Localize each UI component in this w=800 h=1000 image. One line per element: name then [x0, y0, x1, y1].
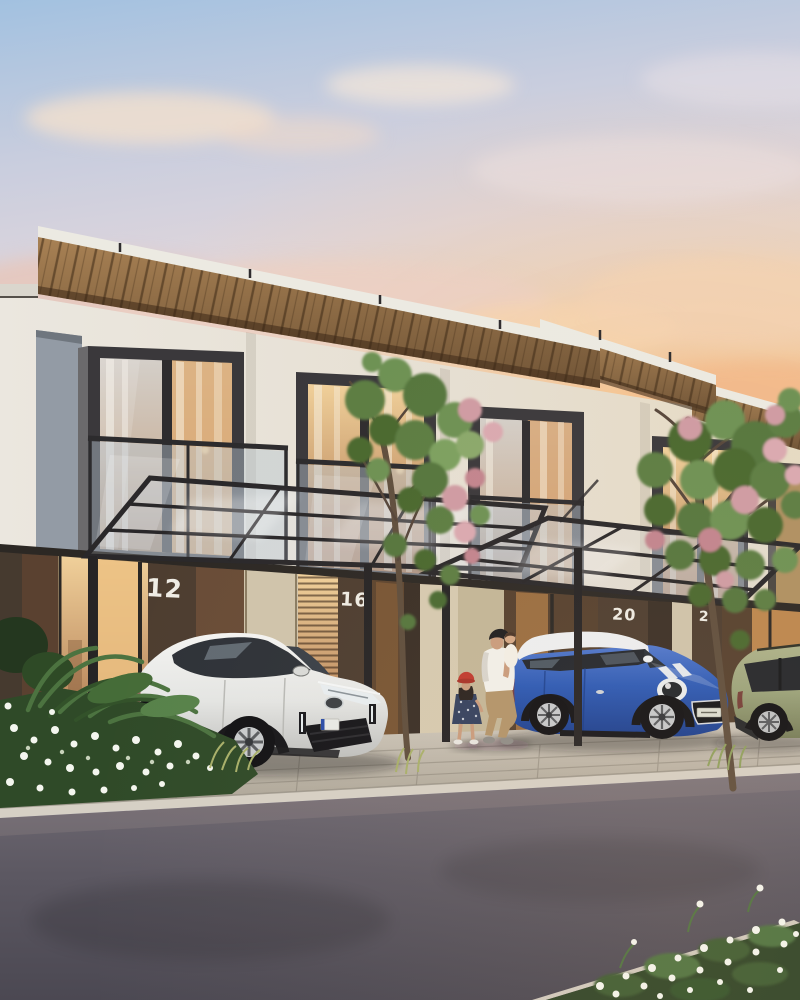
street-scene: 12 16 20 2	[0, 0, 800, 1000]
atmosphere-overlay	[0, 0, 800, 1000]
scene-canvas: 12 16 20 2	[0, 0, 800, 1000]
